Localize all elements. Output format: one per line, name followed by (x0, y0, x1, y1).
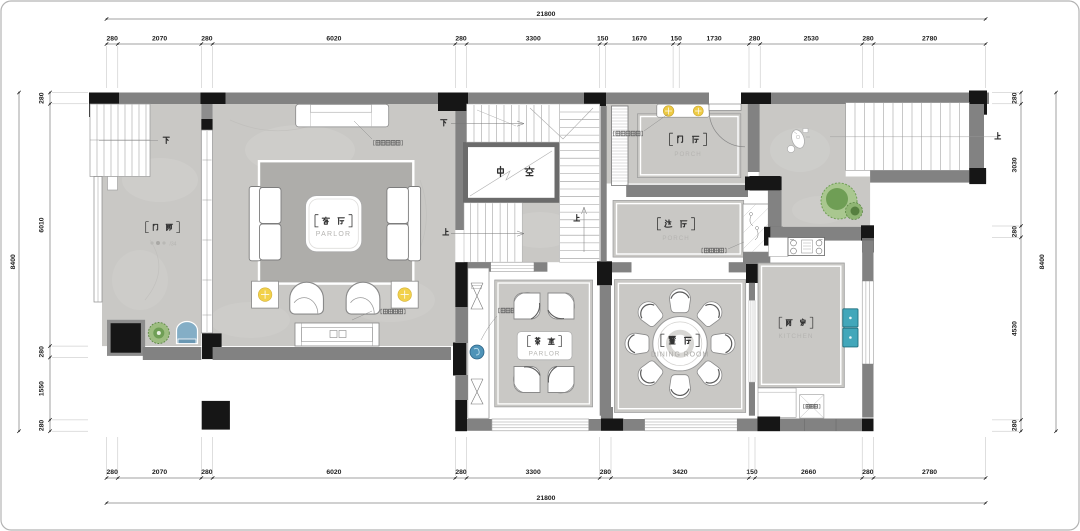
svg-text:8400: 8400 (1039, 254, 1046, 269)
svg-text:3300: 3300 (526, 469, 541, 476)
svg-text:280: 280 (1012, 420, 1019, 432)
svg-text:PORCH: PORCH (662, 235, 689, 242)
svg-text:280: 280 (201, 36, 213, 43)
svg-text:6020: 6020 (326, 36, 341, 43)
svg-text:280: 280 (107, 469, 119, 476)
svg-text:PARLOR: PARLOR (316, 231, 351, 238)
svg-text:2660: 2660 (801, 469, 816, 476)
svg-text:280: 280 (39, 346, 46, 358)
svg-text:1730: 1730 (707, 36, 722, 43)
svg-text:3420: 3420 (672, 469, 687, 476)
svg-text:280: 280 (107, 36, 119, 43)
svg-text:KITCHEN: KITCHEN (778, 333, 813, 340)
svg-text:2780: 2780 (922, 469, 937, 476)
svg-text:280: 280 (39, 92, 46, 104)
svg-text:150: 150 (597, 36, 609, 43)
svg-text:280: 280 (201, 469, 213, 476)
svg-text:PARLOR: PARLOR (529, 351, 561, 358)
svg-text:2780: 2780 (922, 36, 937, 43)
svg-text:6010: 6010 (39, 217, 46, 232)
svg-text:1550: 1550 (39, 381, 46, 396)
svg-text:4530: 4530 (1012, 321, 1019, 336)
svg-text:280: 280 (862, 36, 874, 43)
svg-text:PORCH: PORCH (674, 151, 701, 158)
svg-text:280: 280 (600, 469, 612, 476)
svg-text:280: 280 (455, 469, 467, 476)
svg-text:3300: 3300 (526, 36, 541, 43)
svg-text:/34: /34 (170, 242, 177, 248)
svg-text:150: 150 (671, 36, 683, 43)
svg-text:1670: 1670 (632, 36, 647, 43)
svg-text:280: 280 (1012, 92, 1019, 104)
svg-text:150: 150 (746, 469, 758, 476)
svg-text:3030: 3030 (1012, 157, 1019, 172)
svg-text:6020: 6020 (326, 469, 341, 476)
svg-text:21800: 21800 (537, 11, 556, 18)
svg-text:2070: 2070 (152, 36, 167, 43)
svg-text:280: 280 (1012, 226, 1019, 238)
svg-text:280: 280 (862, 469, 874, 476)
svg-text:DINING ROOM: DINING ROOM (651, 352, 709, 359)
svg-text:280: 280 (39, 420, 46, 432)
svg-text:21800: 21800 (537, 495, 556, 502)
svg-text:280: 280 (749, 36, 761, 43)
svg-text:8400: 8400 (10, 254, 17, 269)
svg-text:2530: 2530 (804, 36, 819, 43)
svg-text:280: 280 (455, 36, 467, 43)
svg-text:2070: 2070 (152, 469, 167, 476)
